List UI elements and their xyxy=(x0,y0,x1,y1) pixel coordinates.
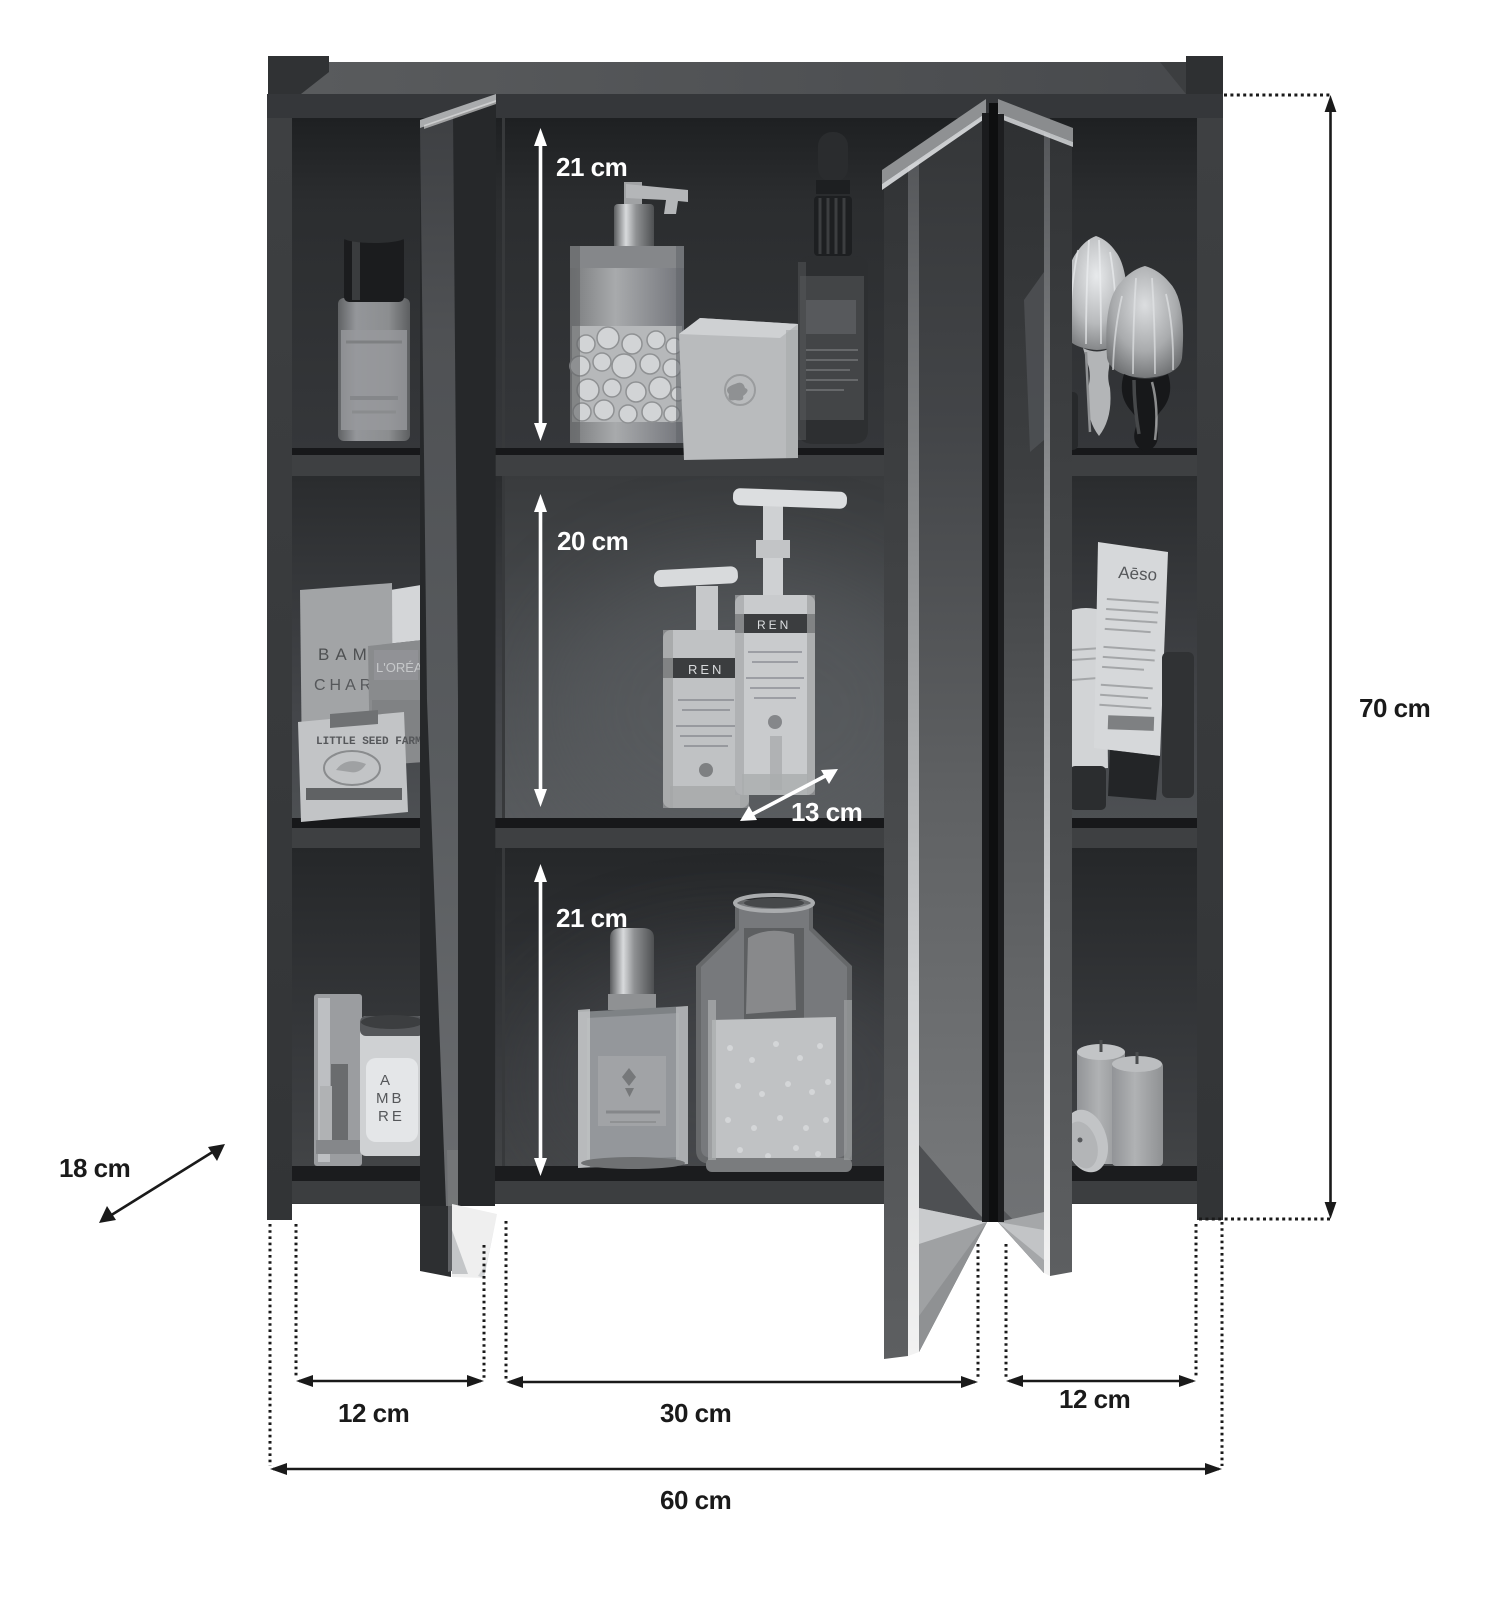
svg-text:REN: REN xyxy=(688,662,724,677)
svg-text:Aēso: Aēso xyxy=(1118,563,1158,585)
svg-text:13 cm: 13 cm xyxy=(791,797,862,827)
svg-text:20 cm: 20 cm xyxy=(557,526,628,556)
svg-text:MB: MB xyxy=(376,1090,405,1107)
svg-text:21 cm: 21 cm xyxy=(556,903,627,933)
svg-text:12 cm: 12 cm xyxy=(338,1398,409,1428)
svg-text:21 cm: 21 cm xyxy=(556,152,627,182)
svg-text:60 cm: 60 cm xyxy=(660,1485,731,1515)
svg-text:12 cm: 12 cm xyxy=(1059,1384,1130,1414)
svg-text:30 cm: 30 cm xyxy=(660,1398,731,1428)
svg-text:LITTLE SEED FARM: LITTLE SEED FARM xyxy=(316,736,422,748)
svg-text:70 cm: 70 cm xyxy=(1359,693,1430,723)
svg-text:RE: RE xyxy=(378,1108,405,1125)
svg-text:18 cm: 18 cm xyxy=(59,1153,130,1183)
svg-text:REN: REN xyxy=(757,618,791,632)
svg-text:CHAR: CHAR xyxy=(314,677,375,694)
svg-text:A: A xyxy=(380,1072,393,1089)
svg-text:BAM: BAM xyxy=(318,645,373,664)
